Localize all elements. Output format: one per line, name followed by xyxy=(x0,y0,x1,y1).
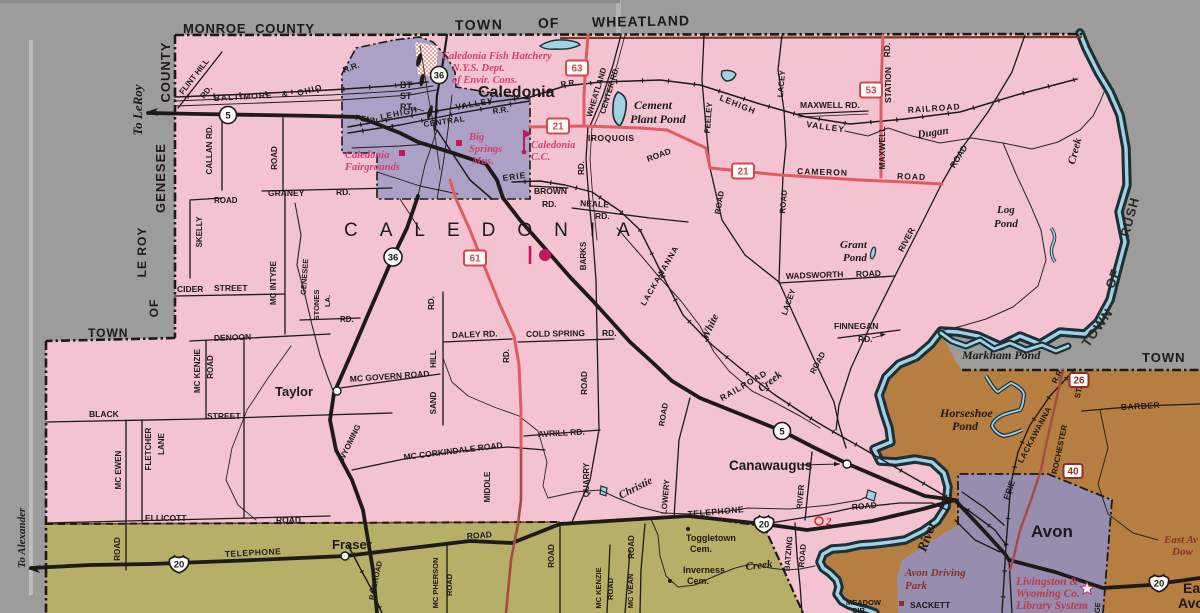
svg-text:MC EWEN: MC EWEN xyxy=(114,450,123,489)
svg-text:Avon Driving: Avon Driving xyxy=(904,567,966,579)
svg-text:MAXWELL RD.: MAXWELL RD. xyxy=(800,100,860,110)
svg-text:RD.: RD. xyxy=(577,161,586,175)
svg-text:Avo: Avo xyxy=(1178,595,1200,611)
svg-text:RD.: RD. xyxy=(595,211,610,221)
svg-text:TOWN: TOWN xyxy=(1142,350,1185,365)
svg-text:26: 26 xyxy=(1073,376,1085,387)
svg-text:MC KENZIE: MC KENZIE xyxy=(594,567,603,608)
svg-text:2: 2 xyxy=(825,516,832,528)
svg-text:RD.: RD. xyxy=(205,125,214,139)
svg-text:N.Y.S. Dept.: N.Y.S. Dept. xyxy=(451,63,505,74)
svg-text:SKELLY: SKELLY xyxy=(195,216,204,247)
svg-text:Horseshoe: Horseshoe xyxy=(939,406,993,420)
svg-text:Fraser: Fraser xyxy=(332,537,372,552)
svg-text:Dow: Dow xyxy=(1171,546,1193,558)
svg-text:STATION: STATION xyxy=(883,67,893,103)
svg-text:Wyoming Co.: Wyoming Co. xyxy=(1016,588,1080,600)
svg-text:BARBER: BARBER xyxy=(1121,400,1161,412)
svg-text:RD.: RD. xyxy=(858,334,873,344)
svg-text:MC PHERSON: MC PHERSON xyxy=(431,558,440,609)
svg-text:SAND: SAND xyxy=(429,391,438,414)
svg-text:Canawaugus: Canawaugus xyxy=(729,458,812,473)
svg-text:WADSWORTH: WADSWORTH xyxy=(786,269,844,281)
svg-text:To LeRoy: To LeRoy xyxy=(130,84,145,135)
svg-text:61: 61 xyxy=(469,254,481,265)
svg-text:FINNEGAN: FINNEGAN xyxy=(834,321,878,331)
svg-text:53: 53 xyxy=(865,86,877,97)
svg-text:BARKS: BARKS xyxy=(579,241,588,270)
svg-text:ROAD: ROAD xyxy=(897,171,926,182)
svg-text:COUNTY: COUNTY xyxy=(158,42,173,103)
svg-text:RD.: RD. xyxy=(427,296,436,310)
svg-text:CIR.: CIR. xyxy=(852,606,867,613)
svg-text:CALEDONIA: CALEDONIA xyxy=(344,220,652,241)
svg-text:Avon: Avon xyxy=(1031,522,1073,541)
svg-text:Taylor: Taylor xyxy=(275,384,313,399)
svg-text:Toggletown: Toggletown xyxy=(686,533,736,543)
svg-text:ROAD: ROAD xyxy=(466,529,492,541)
svg-text:Mus.: Mus. xyxy=(471,156,494,167)
svg-text:OF: OF xyxy=(538,15,560,31)
svg-text:LA.: LA. xyxy=(323,295,332,307)
svg-text:ROAD: ROAD xyxy=(627,535,636,559)
svg-text:MIDDLE: MIDDLE xyxy=(483,471,492,502)
svg-text:Log: Log xyxy=(996,204,1015,216)
svg-text:21: 21 xyxy=(737,167,749,178)
svg-text:20: 20 xyxy=(759,520,770,531)
svg-text:ROAD: ROAD xyxy=(113,537,122,561)
svg-text:STONES: STONES xyxy=(312,290,321,321)
svg-text:20: 20 xyxy=(174,560,185,571)
svg-text:QUARRY: QUARRY xyxy=(582,462,591,497)
svg-text:ST: ST xyxy=(400,91,412,101)
svg-text:Grant: Grant xyxy=(840,239,868,251)
svg-text:RD.: RD. xyxy=(602,328,617,338)
svg-text:ROAD: ROAD xyxy=(270,146,279,170)
svg-text:GRANEY: GRANEY xyxy=(268,188,305,198)
svg-text:ROAD: ROAD xyxy=(580,371,589,395)
svg-text:DALEY RD.: DALEY RD. xyxy=(452,328,498,340)
svg-text:RD.: RD. xyxy=(340,315,354,324)
svg-text:LE ROY: LE ROY xyxy=(135,227,149,278)
svg-text:Cem.: Cem. xyxy=(690,544,712,554)
svg-text:MAXWELL: MAXWELL xyxy=(877,127,887,170)
svg-text:FLETCHER: FLETCHER xyxy=(144,427,153,470)
svg-text:HILL: HILL xyxy=(429,350,438,368)
svg-text:Pond: Pond xyxy=(843,252,867,264)
svg-text:To Alexander: To Alexander xyxy=(16,507,28,568)
svg-text:COLD SPRING: COLD SPRING xyxy=(526,328,586,339)
svg-text:East Av: East Av xyxy=(1163,534,1198,546)
svg-text:20: 20 xyxy=(1154,579,1165,590)
svg-text:Pond: Pond xyxy=(952,419,979,433)
svg-text:RD.: RD. xyxy=(502,349,511,363)
svg-text:ELLICOTT: ELLICOTT xyxy=(145,513,187,523)
svg-text:ROAD: ROAD xyxy=(547,544,556,568)
svg-text:63: 63 xyxy=(571,64,583,75)
svg-text:ROAD: ROAD xyxy=(445,573,454,596)
svg-text:Pond: Pond xyxy=(994,218,1018,230)
svg-text:Inverness: Inverness xyxy=(683,565,725,575)
svg-text:Ea: Ea xyxy=(1183,580,1200,596)
svg-text:TOWN: TOWN xyxy=(88,326,128,340)
svg-text:Plant Pond: Plant Pond xyxy=(630,112,687,126)
svg-text:21: 21 xyxy=(552,122,564,133)
svg-text:RD.: RD. xyxy=(882,43,892,58)
svg-text:STREET: STREET xyxy=(214,283,248,293)
svg-text:Caledonia Fish Hatchery: Caledonia Fish Hatchery xyxy=(442,51,552,62)
svg-text:Caledonia: Caledonia xyxy=(531,140,575,151)
svg-text:MC KENZIE: MC KENZIE xyxy=(193,348,202,393)
svg-text:CIDER: CIDER xyxy=(177,284,203,294)
svg-text:Big: Big xyxy=(468,132,484,143)
svg-text:STREET: STREET xyxy=(207,411,241,421)
svg-text:ROAD: ROAD xyxy=(206,355,215,379)
svg-text:BROWN: BROWN xyxy=(534,186,567,196)
svg-text:40: 40 xyxy=(1067,467,1079,478)
svg-text:RD.: RD. xyxy=(542,199,557,209)
svg-text:&: & xyxy=(281,88,288,98)
svg-text:Springs: Springs xyxy=(469,144,502,155)
svg-text:5: 5 xyxy=(779,426,785,437)
svg-text:Park: Park xyxy=(905,580,928,592)
svg-text:36: 36 xyxy=(388,252,399,263)
svg-text:MC INTYRE: MC INTYRE xyxy=(269,260,278,305)
svg-text:OF: OF xyxy=(147,299,161,318)
svg-text:CAMERON: CAMERON xyxy=(797,166,848,178)
svg-text:Cement: Cement xyxy=(634,98,673,112)
svg-text:Library System: Library System xyxy=(1015,600,1088,612)
svg-text:TOWN: TOWN xyxy=(455,16,504,33)
svg-text:LANE: LANE xyxy=(157,432,166,454)
svg-text:GE: GE xyxy=(1093,602,1103,613)
svg-text:BLACK: BLACK xyxy=(89,409,120,419)
svg-text:ROAD: ROAD xyxy=(276,515,301,525)
svg-text:Fairgrounds: Fairgrounds xyxy=(344,162,400,173)
svg-text:of Envir. Cons.: of Envir. Cons. xyxy=(452,75,517,86)
svg-text:RD.: RD. xyxy=(336,187,351,197)
svg-text:36: 36 xyxy=(434,70,445,81)
svg-text:ROAD: ROAD xyxy=(214,196,238,205)
svg-text:WHEATLAND: WHEATLAND xyxy=(592,12,690,30)
svg-text:GENESEE: GENESEE xyxy=(153,143,168,213)
svg-text:NEALE: NEALE xyxy=(580,198,610,210)
svg-text:IROQUOIS: IROQUOIS xyxy=(588,133,635,143)
svg-text:ROAD: ROAD xyxy=(606,577,615,600)
svg-text:Markham Pond: Markham Pond xyxy=(961,348,1041,362)
svg-text:ROAD: ROAD xyxy=(856,268,881,279)
svg-text:Cem.: Cem. xyxy=(687,576,709,586)
svg-text:DENOON: DENOON xyxy=(214,332,252,343)
svg-text:5: 5 xyxy=(225,110,231,121)
svg-text:Livingston &: Livingston & xyxy=(1015,576,1078,588)
svg-text:CALLAN: CALLAN xyxy=(205,141,214,174)
svg-text:Caledonia: Caledonia xyxy=(345,150,389,161)
svg-text:MONROE COUNTY: MONROE COUNTY xyxy=(183,21,315,36)
svg-text:MC VEAN: MC VEAN xyxy=(626,574,635,609)
svg-text:SACKETT: SACKETT xyxy=(910,600,951,610)
svg-text:C.C.: C.C. xyxy=(531,152,550,163)
